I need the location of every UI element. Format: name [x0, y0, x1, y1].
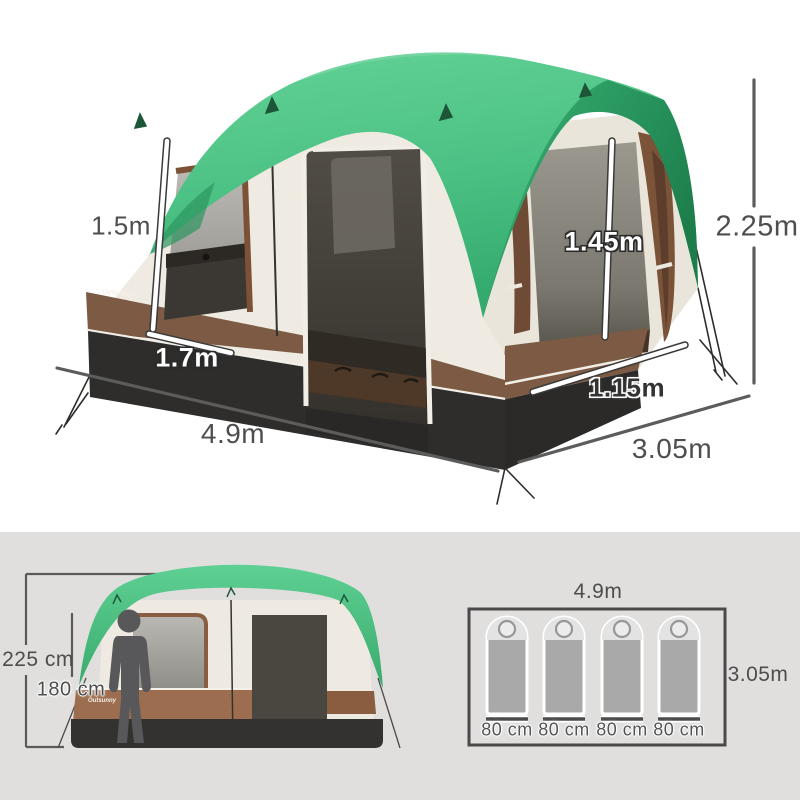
- sleeping-bag: [486, 617, 528, 719]
- label-bag-width-1: 80 cm: [481, 720, 533, 741]
- front-view-base: [71, 719, 383, 748]
- front-view-dark-door: [252, 615, 327, 722]
- label-floorplan-depth: 3.05m: [728, 663, 789, 687]
- label-peak-height: 225 cm: [2, 648, 74, 672]
- label-overall-length: 4.9m: [201, 418, 265, 450]
- sleeping-bag: [601, 617, 643, 719]
- label-bag-width-2: 80 cm: [538, 720, 590, 741]
- front-face: [86, 132, 505, 470]
- label-left-door-width: 1.7m: [155, 343, 219, 374]
- tent-dimension-diagram: 1.5m 1.7m 1.45m 1.15m 2.25m 4.9m 3.05m 2…: [0, 0, 800, 800]
- label-floorplan-length: 4.9m: [574, 580, 623, 604]
- label-bag-width-3: 80 cm: [596, 720, 648, 741]
- label-porch-door-width: 1.15m: [589, 373, 665, 404]
- sleeping-bag: [658, 617, 700, 719]
- sleeping-bag: [543, 617, 585, 719]
- label-overall-depth: 3.05m: [632, 433, 712, 465]
- label-overall-height: 2.25m: [715, 211, 798, 244]
- label-bag-width-4: 80 cm: [653, 720, 705, 741]
- label-left-door-height: 1.5m: [91, 211, 151, 242]
- diagram-artwork: [0, 0, 800, 800]
- label-person-height: 180 cm: [37, 679, 106, 702]
- label-porch-door-height: 1.45m: [564, 227, 643, 258]
